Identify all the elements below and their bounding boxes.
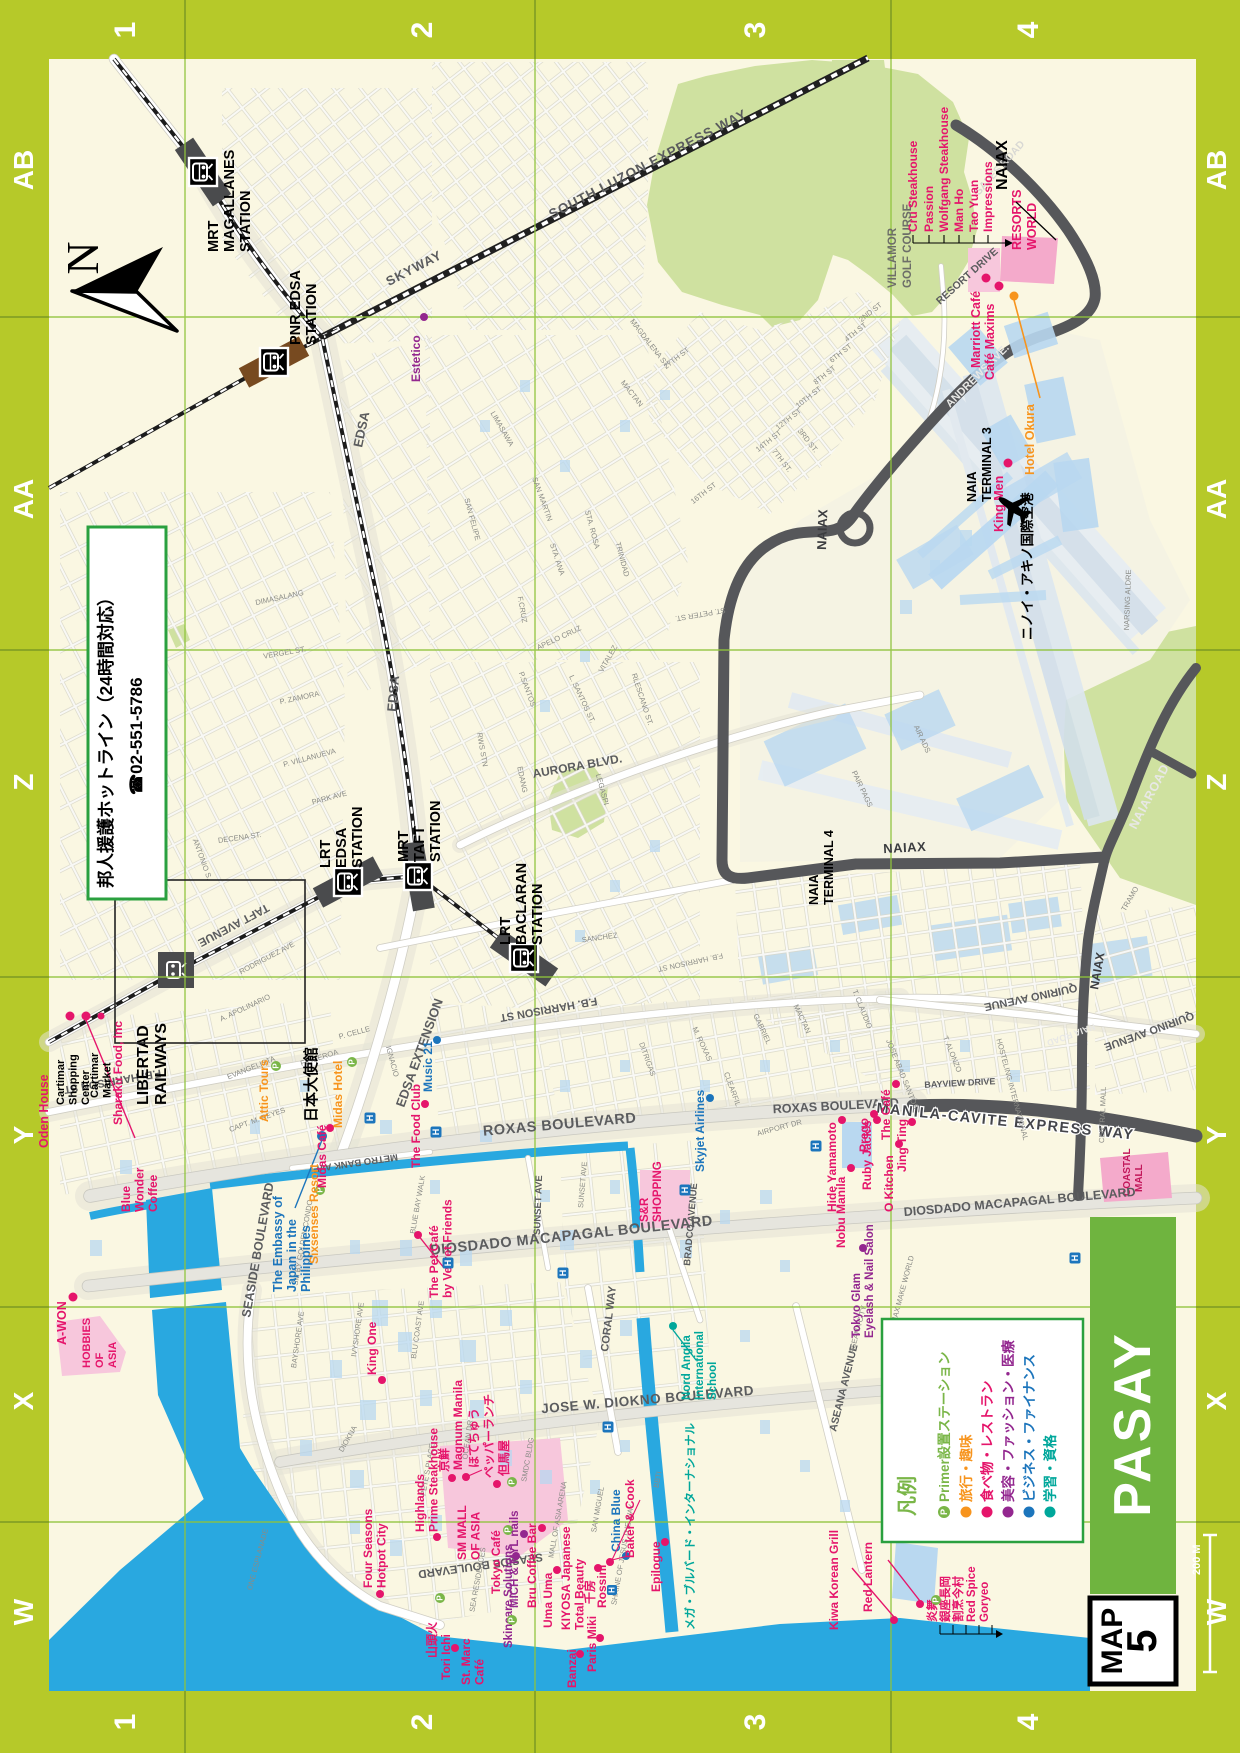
svg-text:Blue: Blue: [119, 1186, 133, 1212]
svg-text:H: H: [608, 1587, 617, 1593]
svg-text:NAIAX: NAIAX: [994, 140, 1011, 190]
svg-text:VILLAMOR: VILLAMOR: [887, 227, 899, 288]
svg-text:H: H: [1070, 1255, 1080, 1262]
svg-text:Tori Ichi: Tori Ichi: [439, 1634, 453, 1680]
svg-text:P: P: [932, 1597, 941, 1603]
svg-text:H: H: [811, 1143, 821, 1150]
svg-text:The Food Club: The Food Club: [409, 1084, 423, 1168]
svg-text:NAIA: NAIA: [807, 874, 821, 905]
svg-text:AA: AA: [1201, 479, 1232, 519]
svg-text:STATION: STATION: [428, 801, 444, 862]
svg-text:LRT: LRT: [498, 917, 514, 945]
svg-text:但馬屋: 但馬屋: [496, 1440, 511, 1477]
svg-text:TERMINAL 4: TERMINAL 4: [822, 830, 836, 905]
svg-text:WORLD: WORLD: [1025, 203, 1039, 250]
svg-text:Passion: Passion: [922, 186, 936, 232]
svg-text:Magnum Manila: Magnum Manila: [451, 1380, 465, 1470]
svg-text:☎02-551-5786: ☎02-551-5786: [127, 677, 146, 795]
svg-text:AA: AA: [8, 479, 39, 519]
svg-text:Epilogue: Epilogue: [649, 1541, 663, 1592]
svg-text:Skincare Solutions: Skincare Solutions: [503, 1544, 515, 1648]
svg-text:Oden House: Oden House: [37, 1074, 51, 1148]
svg-text:Shopping: Shopping: [68, 1054, 80, 1105]
svg-text:Estetico: Estetico: [409, 335, 423, 382]
svg-text:ビジネス・ファイナンス: ビジネス・ファイナンス: [1022, 1354, 1037, 1502]
svg-text:The Café: The Café: [879, 1089, 893, 1140]
svg-text:Café: Café: [473, 1659, 487, 1685]
svg-text:P: P: [508, 1617, 517, 1623]
svg-text:H: H: [603, 1424, 613, 1431]
svg-text:Nord Anglia: Nord Anglia: [681, 1335, 693, 1400]
svg-text:H: H: [431, 1129, 441, 1136]
svg-text:ほてちゅう: ほてちゅう: [467, 1408, 481, 1468]
svg-text:Attic Tours: Attic Tours: [257, 1059, 271, 1122]
svg-text:AB: AB: [1201, 150, 1232, 190]
svg-text:Cartimar: Cartimar: [55, 1059, 67, 1105]
svg-text:Eyelash & Nail Salon: Eyelash & Nail Salon: [864, 1224, 876, 1338]
svg-text:Hotel Okura: Hotel Okura: [1023, 403, 1037, 475]
svg-text:P: P: [272, 1063, 281, 1069]
svg-text:2: 2: [406, 22, 439, 39]
svg-text:1: 1: [109, 1714, 142, 1731]
svg-text:3: 3: [739, 1714, 772, 1731]
svg-text:山頭火: 山頭火: [424, 1621, 439, 1658]
svg-text:X: X: [1201, 1391, 1232, 1410]
svg-text:Rossini: Rossini: [595, 1565, 609, 1608]
svg-text:Nobu Manila: Nobu Manila: [834, 1176, 848, 1248]
svg-text:MALL: MALL: [1134, 1164, 1145, 1192]
svg-text:4: 4: [1012, 1713, 1045, 1730]
svg-text:Z: Z: [1201, 773, 1232, 790]
svg-text:学習・資格: 学習・資格: [1042, 1434, 1058, 1502]
svg-text:P: P: [508, 1479, 517, 1485]
svg-text:食べ物・レストラン: 食べ物・レストラン: [979, 1381, 995, 1503]
svg-text:Tokyo Café: Tokyo Café: [489, 1530, 503, 1594]
svg-text:A-WON: A-WON: [55, 1301, 69, 1345]
svg-text:EDSA: EDSA: [334, 827, 350, 868]
svg-text:Red Spice: Red Spice: [966, 1566, 978, 1622]
svg-text:凡例: 凡例: [895, 1476, 919, 1516]
svg-text:P: P: [939, 1509, 949, 1515]
svg-text:MRT: MRT: [206, 220, 222, 252]
svg-text:STATION: STATION: [304, 284, 320, 345]
svg-text:Hotpot City: Hotpot City: [375, 1523, 389, 1588]
svg-text:邦人援護ホットライン（24時間対応）: 邦人援護ホットライン（24時間対応）: [96, 589, 116, 888]
svg-text:割烹今村: 割烹今村: [951, 1576, 965, 1622]
svg-text:LIBERTAD: LIBERTAD: [135, 1025, 152, 1105]
svg-text:The Embassy of: The Embassy of: [271, 1195, 285, 1292]
svg-text:Man Ho: Man Ho: [952, 189, 966, 232]
svg-text:Marriott Café: Marriott Café: [969, 291, 983, 368]
svg-text:MAGALLANES: MAGALLANES: [222, 149, 238, 252]
svg-text:日本大使館: 日本大使館: [302, 1047, 320, 1122]
svg-text:AB: AB: [8, 150, 39, 190]
svg-text:PNR EDSA: PNR EDSA: [288, 270, 304, 345]
svg-text:4: 4: [1012, 21, 1045, 38]
svg-text:Jing Ting: Jing Ting: [895, 1119, 909, 1172]
svg-text:RESORTS: RESORTS: [1010, 190, 1024, 250]
svg-text:ニノイ・アキノ国際空港: ニノイ・アキノ国際空港: [1019, 492, 1035, 640]
svg-text:京鮮: 京鮮: [436, 1448, 451, 1472]
svg-text:Four Seasons: Four Seasons: [361, 1508, 375, 1588]
svg-text:2: 2: [406, 1714, 439, 1731]
svg-text:KIYOSA Japanese: KIYOSA Japanese: [559, 1526, 573, 1630]
svg-text:St. Marc: St. Marc: [459, 1638, 473, 1685]
svg-text:SHOPPING: SHOPPING: [652, 1161, 664, 1222]
svg-text:Bru Coffee Bar: Bru Coffee Bar: [525, 1523, 539, 1608]
svg-text:Sharaku Food, Inc: Sharaku Food, Inc: [111, 1021, 125, 1125]
svg-text:NAIA: NAIA: [965, 471, 979, 502]
svg-text:School: School: [707, 1362, 719, 1400]
svg-text:STATION: STATION: [350, 807, 366, 868]
svg-text:Z: Z: [8, 773, 39, 790]
svg-text:S&R: S&R: [639, 1197, 651, 1222]
svg-text:China Blue: China Blue: [609, 1489, 623, 1552]
svg-text:Midas Hotel: Midas Hotel: [331, 1061, 345, 1128]
svg-text:Prime Steakhouse: Prime Steakhouse: [427, 1428, 441, 1532]
svg-text:Paris Miki: Paris Miki: [585, 1616, 599, 1672]
svg-text:Tao Yuan: Tao Yuan: [967, 180, 981, 232]
svg-text:SUNSET AVE: SUNSET AVE: [532, 1175, 545, 1235]
svg-text:Kiwa Korean Grill: Kiwa Korean Grill: [827, 1530, 841, 1630]
svg-text:Tokyo Glam: Tokyo Glam: [851, 1273, 863, 1338]
svg-text:Wonder: Wonder: [133, 1167, 147, 1212]
svg-text:Y: Y: [1201, 1125, 1232, 1144]
svg-text:OF: OF: [94, 1352, 106, 1368]
svg-text:3: 3: [739, 22, 772, 39]
svg-text:Baker & Cook: Baker & Cook: [623, 1479, 637, 1558]
svg-text:Cartimar: Cartimar: [89, 1052, 101, 1098]
svg-text:美容・ファッション・医療: 美容・ファッション・医療: [1000, 1340, 1016, 1502]
svg-text:Wolfgang Steakhouse: Wolfgang Steakhouse: [937, 107, 951, 232]
svg-text:PASAY: PASAY: [1104, 1331, 1162, 1517]
svg-text:Midas Café: Midas Café: [315, 1124, 329, 1188]
svg-text:Highlands: Highlands: [413, 1474, 427, 1532]
svg-text:Uma Uma: Uma Uma: [541, 1572, 555, 1628]
svg-text:P: P: [348, 1059, 357, 1065]
svg-text:H: H: [680, 1187, 690, 1194]
svg-text:TAFT: TAFT: [412, 826, 428, 862]
svg-text:ペッパーランチ: ペッパーランチ: [482, 1394, 496, 1478]
svg-text:ASIA: ASIA: [107, 1342, 119, 1368]
svg-text:Red Lantern: Red Lantern: [861, 1542, 875, 1612]
svg-text:H: H: [443, 1260, 453, 1267]
svg-text:NAIAX: NAIAX: [883, 839, 927, 856]
svg-text:Coffee: Coffee: [146, 1174, 160, 1212]
svg-text:X: X: [8, 1391, 39, 1410]
svg-text:Banzai: Banzai: [565, 1649, 579, 1688]
svg-text:International: International: [694, 1331, 706, 1400]
svg-text:Impressions: Impressions: [981, 161, 995, 232]
svg-text:Primer設置ステーション: Primer設置ステーション: [936, 1351, 952, 1502]
svg-text:LRT: LRT: [318, 840, 334, 868]
svg-text:King One: King One: [365, 1321, 379, 1375]
svg-text:RAILWAYS: RAILWAYS: [153, 1023, 170, 1105]
svg-text:HOBBIES: HOBBIES: [81, 1318, 93, 1368]
svg-text:1: 1: [109, 22, 142, 39]
svg-text:Goryeo: Goryeo: [979, 1582, 991, 1622]
svg-text:BACLARAN: BACLARAN: [514, 863, 530, 945]
svg-text:メガ・ブルバード・インターナショナル: メガ・ブルバード・インターナショナル: [683, 1423, 697, 1630]
svg-text:O Kitchen: O Kitchen: [882, 1155, 896, 1212]
svg-text:200 M: 200 M: [1191, 1544, 1203, 1575]
svg-text:Y: Y: [8, 1125, 39, 1144]
svg-text:EDSA: EDSA: [384, 674, 402, 712]
svg-text:Ruby Jack’s: Ruby Jack’s: [860, 1120, 874, 1190]
svg-text:Café Maxims: Café Maxims: [983, 304, 997, 380]
svg-text:W: W: [1201, 1598, 1232, 1625]
svg-text:N: N: [57, 241, 108, 274]
svg-text:by Velvet Friends: by Velvet Friends: [441, 1199, 455, 1298]
svg-text:Skyjet Airlines: Skyjet Airlines: [693, 1089, 707, 1172]
svg-text:5: 5: [1118, 1629, 1165, 1652]
svg-text:Cru Steakhouse: Cru Steakhouse: [906, 140, 920, 232]
svg-text:Music 21: Music 21: [421, 1041, 435, 1092]
svg-text:Japan in the: Japan in the: [285, 1219, 299, 1292]
svg-text:H: H: [365, 1115, 375, 1122]
svg-text:P: P: [436, 1595, 445, 1601]
svg-text:STATION: STATION: [238, 191, 254, 252]
svg-text:SM MALL: SM MALL: [455, 1505, 469, 1560]
svg-text:NAIAX: NAIAX: [814, 509, 830, 550]
svg-text:MRT: MRT: [396, 830, 412, 862]
svg-text:W: W: [8, 1598, 39, 1625]
svg-text:旅行・趣味: 旅行・趣味: [958, 1434, 974, 1502]
svg-text:H: H: [558, 1270, 568, 1277]
svg-text:The Pet Café: The Pet Café: [427, 1225, 441, 1298]
svg-text:OF ASIA: OF ASIA: [469, 1511, 483, 1560]
svg-text:STATION: STATION: [530, 884, 546, 945]
